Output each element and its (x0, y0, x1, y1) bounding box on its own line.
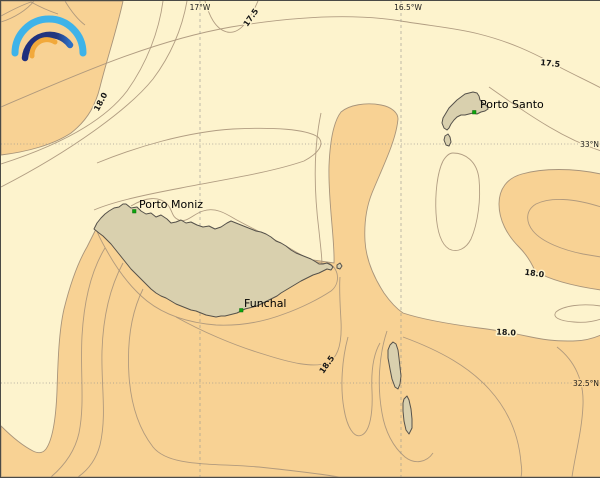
lon-label-17w: 17°W (190, 3, 211, 12)
lon-label-16-5w: 16.5°W (394, 3, 422, 12)
sst-contour-map: 17.5 17.5 18.0 18.0 18.0 18.5 17°W 16.5°… (1, 1, 600, 477)
city-marker-porto-santo (473, 111, 477, 115)
city-marker-funchal (240, 309, 244, 313)
city-label-funchal: Funchal (244, 297, 287, 310)
city-marker-porto-moniz (133, 210, 137, 214)
contour-label-18-0: 18.0 (496, 327, 517, 337)
city-label-porto-santo: Porto Santo (480, 98, 544, 111)
lat-label-33n: 33°N (580, 140, 599, 149)
map-viewport: 17.5 17.5 18.0 18.0 18.0 18.5 17°W 16.5°… (0, 0, 600, 478)
lat-label-32-5n: 32.5°N (573, 379, 599, 388)
city-label-porto-moniz: Porto Moniz (139, 198, 203, 211)
